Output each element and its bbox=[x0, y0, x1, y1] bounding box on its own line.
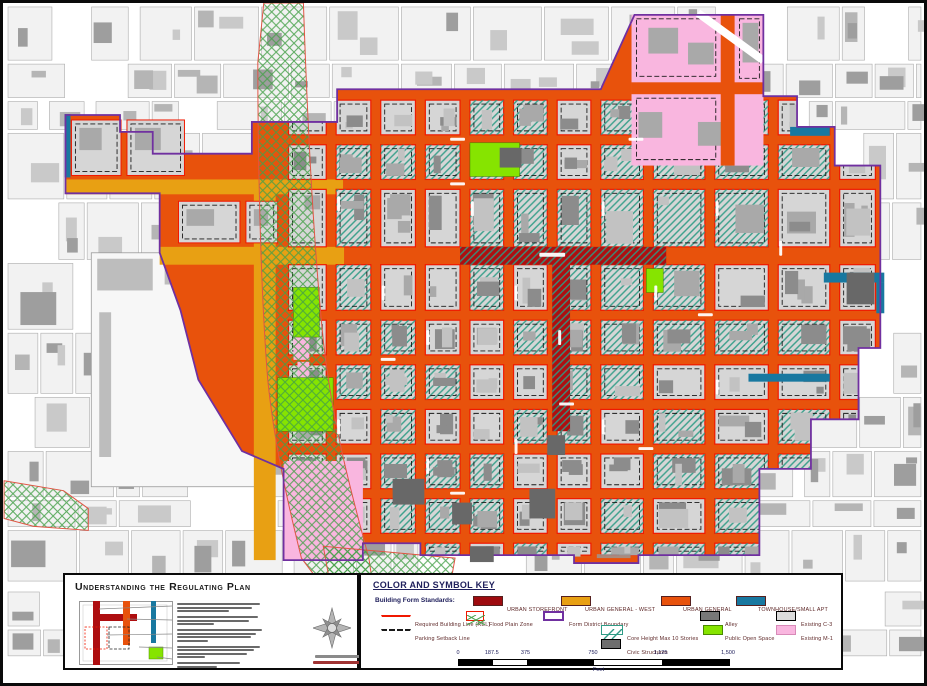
building-footprint bbox=[232, 541, 245, 567]
building-footprint bbox=[20, 292, 56, 325]
building-footprint bbox=[841, 106, 847, 124]
core-height-swatch bbox=[601, 625, 623, 635]
building-footprint bbox=[482, 110, 492, 130]
building-footprint bbox=[609, 465, 627, 472]
building-footprint bbox=[864, 416, 885, 425]
building-footprint bbox=[384, 464, 407, 478]
street-label-mark bbox=[337, 419, 340, 434]
form-district-boundary-swatch bbox=[543, 611, 564, 621]
map-fine-label bbox=[597, 554, 631, 558]
building-footprint bbox=[848, 23, 857, 38]
building-footprint bbox=[105, 542, 123, 556]
parcel bbox=[909, 7, 921, 60]
key-item-label: Public Open Space bbox=[725, 627, 775, 645]
building-footprint bbox=[517, 546, 536, 554]
building-footprint bbox=[11, 541, 45, 568]
building-footprint bbox=[404, 275, 413, 295]
street-label-mark bbox=[779, 241, 782, 256]
building-footprint bbox=[678, 431, 693, 437]
key-swatch bbox=[776, 611, 796, 621]
building-footprint bbox=[649, 554, 668, 569]
building-footprint bbox=[18, 28, 28, 47]
building-footprint bbox=[99, 312, 111, 457]
annotation-text-line bbox=[177, 629, 262, 631]
building-footprint bbox=[519, 233, 540, 242]
building-footprint bbox=[30, 462, 39, 482]
parcel bbox=[894, 333, 921, 393]
building-footprint bbox=[21, 108, 32, 125]
city-block bbox=[778, 365, 830, 400]
building-footprint bbox=[561, 122, 571, 129]
building-footprint bbox=[519, 109, 531, 126]
street-label-mark bbox=[602, 201, 605, 216]
building-footprint bbox=[434, 156, 441, 174]
street-label-mark bbox=[382, 286, 385, 301]
building-footprint bbox=[387, 198, 402, 219]
building-footprint bbox=[625, 420, 639, 434]
parcel bbox=[401, 7, 470, 60]
building-footprint bbox=[799, 80, 820, 95]
building-footprint bbox=[528, 289, 542, 307]
building-footprint bbox=[719, 416, 749, 427]
flood-plain-swatch bbox=[466, 611, 484, 621]
building-footprint bbox=[816, 387, 823, 394]
building-footprint bbox=[219, 17, 243, 29]
legend-mini-diagram bbox=[79, 601, 173, 665]
city-block bbox=[557, 100, 591, 135]
building-footprint bbox=[897, 542, 907, 553]
building-footprint bbox=[347, 279, 365, 297]
building-footprint bbox=[803, 560, 812, 569]
building-footprint bbox=[446, 13, 458, 31]
annotation-text-line bbox=[177, 607, 252, 609]
scale-tick-label: 187.5 bbox=[485, 650, 499, 656]
building-footprint bbox=[675, 464, 682, 486]
building-footprint bbox=[385, 377, 407, 385]
building-footprint bbox=[344, 333, 359, 352]
building-footprint bbox=[392, 326, 407, 347]
building-footprint bbox=[818, 17, 825, 40]
building-footprint bbox=[66, 218, 77, 242]
parcel bbox=[140, 7, 191, 60]
building-footprint bbox=[811, 459, 818, 482]
building-footprint bbox=[429, 196, 442, 230]
scale-bar-segment bbox=[493, 660, 527, 665]
key-swatch bbox=[700, 611, 720, 621]
scale-bar-segment bbox=[459, 660, 493, 665]
civic-structure bbox=[847, 273, 875, 305]
building-footprint bbox=[909, 163, 924, 172]
building-footprint bbox=[591, 81, 600, 88]
building-footprint bbox=[912, 104, 924, 121]
building-footprint bbox=[341, 67, 351, 77]
townhouse-small-apt-strip bbox=[748, 374, 829, 382]
building-footprint bbox=[474, 429, 490, 439]
building-footprint bbox=[476, 379, 496, 392]
building-footprint bbox=[123, 111, 136, 120]
building-footprint bbox=[572, 41, 599, 54]
building-footprint bbox=[394, 115, 412, 126]
annotation-text-line bbox=[177, 662, 240, 664]
building-footprint bbox=[71, 481, 90, 494]
building-footprint bbox=[880, 76, 904, 90]
building-footprint bbox=[444, 109, 455, 127]
street-label-mark bbox=[515, 439, 518, 454]
building-footprint bbox=[918, 20, 924, 32]
building-footprint bbox=[58, 345, 66, 365]
building-footprint bbox=[32, 71, 46, 78]
parcel bbox=[8, 592, 39, 626]
street-label-mark bbox=[450, 182, 465, 185]
parcel bbox=[41, 333, 73, 393]
scale-tick-label: 1,500 bbox=[721, 650, 735, 656]
annotation-paragraph bbox=[177, 629, 269, 642]
building-footprint bbox=[134, 70, 153, 89]
existing-m1-area bbox=[744, 97, 764, 158]
city-block bbox=[715, 365, 769, 400]
building-footprint bbox=[346, 372, 363, 388]
annotation-text-line bbox=[177, 620, 249, 622]
building-footprint bbox=[659, 380, 673, 393]
building-footprint bbox=[897, 508, 915, 519]
key-swatch bbox=[601, 639, 621, 649]
building-footprint bbox=[467, 68, 485, 84]
building-footprint bbox=[741, 296, 765, 307]
annotation-text-line bbox=[177, 633, 256, 635]
building-footprint bbox=[198, 11, 214, 28]
civic-structure bbox=[529, 489, 555, 519]
building-footprint bbox=[398, 221, 411, 233]
building-footprint bbox=[415, 72, 432, 85]
building-footprint bbox=[94, 22, 112, 43]
building-footprint bbox=[785, 271, 798, 294]
building-footprint bbox=[835, 503, 863, 511]
building-footprint bbox=[615, 386, 640, 396]
street-label-mark bbox=[426, 330, 429, 345]
key-item-label: Existing M-1 bbox=[801, 627, 833, 645]
building-footprint bbox=[623, 505, 631, 517]
building-footprint bbox=[894, 464, 916, 486]
building-footprint bbox=[817, 105, 828, 117]
building-footprint bbox=[430, 286, 436, 297]
building-footprint bbox=[729, 508, 747, 523]
scale-bar-segment bbox=[662, 660, 730, 665]
building-footprint bbox=[622, 323, 636, 343]
building-footprint bbox=[341, 201, 364, 209]
annotation-text-line bbox=[177, 616, 258, 618]
building-footprint bbox=[48, 639, 60, 653]
legend-annotation-paragraphs bbox=[177, 603, 269, 672]
scale-bar bbox=[458, 659, 730, 666]
street-label-mark bbox=[602, 419, 605, 434]
building-footprint bbox=[606, 211, 633, 244]
street-label-mark bbox=[638, 447, 653, 450]
annotation-text-line bbox=[177, 623, 214, 625]
building-footprint bbox=[906, 457, 917, 463]
annotation-text-line bbox=[177, 666, 217, 668]
street-label-mark bbox=[539, 253, 565, 257]
building-footprint bbox=[854, 535, 863, 560]
building-footprint bbox=[790, 413, 812, 430]
building-footprint bbox=[437, 425, 447, 433]
building-footprint bbox=[338, 11, 358, 40]
key-label-text: Flood Plain Zone bbox=[489, 622, 533, 628]
building-footprint bbox=[433, 378, 455, 386]
core-height-overlay bbox=[601, 265, 644, 311]
building-footprint bbox=[658, 197, 669, 206]
building-footprint bbox=[31, 163, 59, 182]
annotation-paragraph bbox=[177, 616, 269, 625]
scale-tick-label: 1,125 bbox=[654, 650, 668, 656]
building-footprint bbox=[47, 403, 67, 431]
building-footprint bbox=[611, 547, 624, 554]
building-footprint bbox=[729, 331, 752, 340]
civic-structure bbox=[547, 435, 565, 455]
core-height-overlay bbox=[601, 499, 644, 534]
building-footprint bbox=[843, 326, 867, 344]
building-footprint bbox=[565, 502, 582, 520]
key-label-text: Existing M-1 bbox=[801, 636, 833, 642]
civic-structure bbox=[393, 479, 425, 505]
key-swatch bbox=[776, 625, 796, 635]
annotation-text-line bbox=[177, 610, 229, 612]
civic-structure bbox=[470, 546, 494, 562]
building-footprint bbox=[440, 507, 449, 519]
building-footprint bbox=[565, 158, 577, 169]
annotation-text-line bbox=[177, 649, 254, 651]
building-footprint bbox=[523, 376, 535, 389]
key-label-text: Public Open Space bbox=[725, 636, 775, 642]
building-footprint bbox=[484, 464, 492, 481]
building-footprint bbox=[659, 509, 689, 528]
building-footprint bbox=[360, 37, 378, 55]
parking-setback-line-sample bbox=[381, 629, 411, 632]
building-footprint bbox=[735, 205, 763, 233]
building-footprint bbox=[535, 556, 548, 571]
core-height-overlay bbox=[425, 145, 460, 180]
building-footprint bbox=[667, 329, 690, 343]
building-footprint bbox=[729, 377, 739, 391]
building-footprint bbox=[13, 633, 34, 649]
building-footprint bbox=[902, 601, 924, 610]
annotation-text-line bbox=[177, 603, 260, 605]
building-footprint bbox=[621, 278, 632, 285]
street-label-mark bbox=[654, 286, 657, 301]
street-label-mark bbox=[558, 330, 561, 345]
building-footprint bbox=[659, 413, 665, 431]
building-footprint bbox=[901, 365, 917, 377]
building-footprint bbox=[523, 331, 535, 340]
parcel bbox=[916, 64, 921, 97]
building-footprint bbox=[474, 198, 494, 231]
key-item-label: Flood Plain Zone bbox=[489, 613, 533, 631]
key-swatch bbox=[703, 625, 723, 635]
building-footprint bbox=[12, 612, 33, 621]
building-footprint bbox=[15, 355, 30, 370]
building-footprint bbox=[154, 104, 172, 112]
scale-bar-segment bbox=[594, 660, 662, 665]
annotation-paragraph bbox=[177, 603, 269, 612]
building-footprint bbox=[792, 148, 819, 167]
key-label-text: Parking Setback Line bbox=[415, 636, 470, 642]
scale-tick-label: 375 bbox=[521, 650, 530, 656]
civic-structure bbox=[500, 148, 522, 168]
building-footprint bbox=[478, 328, 498, 344]
scale-bar-segment bbox=[527, 660, 595, 665]
building-footprint bbox=[916, 208, 924, 225]
building-footprint bbox=[539, 77, 557, 87]
building-footprint bbox=[610, 109, 619, 117]
building-footprint bbox=[562, 460, 581, 472]
parcel bbox=[888, 531, 921, 581]
street-label-mark bbox=[515, 286, 518, 301]
street-label-mark bbox=[629, 138, 644, 141]
parcel bbox=[8, 7, 52, 60]
building-footprint bbox=[789, 222, 810, 232]
street-label-mark bbox=[716, 201, 719, 216]
building-footprint bbox=[477, 511, 497, 527]
building-footprint bbox=[477, 282, 499, 296]
core-height-overlay bbox=[336, 189, 371, 246]
building-footprint bbox=[197, 76, 218, 94]
key-swatch bbox=[473, 596, 503, 606]
rbl-line-sample bbox=[381, 615, 411, 618]
building-footprint bbox=[87, 507, 107, 525]
building-footprint bbox=[398, 149, 405, 161]
street-label-mark bbox=[426, 459, 429, 474]
parcel bbox=[787, 7, 839, 60]
civic-structure bbox=[452, 503, 472, 525]
building-footprint bbox=[194, 546, 211, 573]
building-footprint bbox=[518, 464, 540, 473]
compass-rose-icon bbox=[313, 605, 351, 655]
building-footprint bbox=[520, 417, 537, 437]
building-footprint bbox=[138, 505, 171, 522]
building-footprint bbox=[347, 115, 363, 127]
building-footprint bbox=[847, 454, 864, 475]
building-footprint bbox=[442, 328, 452, 348]
annotation-paragraph bbox=[177, 646, 269, 659]
annotation-text-line bbox=[177, 646, 260, 648]
building-footprint bbox=[801, 325, 826, 345]
building-footprint bbox=[733, 464, 745, 483]
building-footprint bbox=[562, 196, 579, 225]
building-footprint bbox=[606, 157, 618, 170]
annotation-text-line bbox=[177, 640, 208, 642]
fine-print-url bbox=[313, 661, 361, 664]
townhouse-small-apt-strip bbox=[790, 127, 830, 136]
building-footprint bbox=[390, 507, 400, 529]
regulating-plan-page: Understanding the Regulating Plan bbox=[0, 0, 927, 686]
parcel bbox=[846, 531, 885, 581]
legend-understanding-panel: Understanding the Regulating Plan bbox=[63, 573, 359, 670]
street-label-mark bbox=[337, 196, 340, 211]
street-label-mark bbox=[716, 380, 719, 395]
building-footprint bbox=[152, 225, 159, 240]
building-footprint bbox=[899, 637, 924, 651]
building-footprint bbox=[352, 417, 365, 429]
building-footprint bbox=[490, 30, 507, 50]
street-label-mark bbox=[450, 138, 465, 141]
annotation-text-line bbox=[177, 653, 247, 655]
building-footprint bbox=[340, 157, 362, 173]
parcel bbox=[8, 64, 65, 97]
building-footprint bbox=[846, 72, 867, 84]
building-footprint bbox=[386, 163, 404, 175]
street-label-mark bbox=[471, 201, 474, 216]
scale-tick-label: 0 bbox=[456, 650, 459, 656]
key-title: COLOR AND SYMBOL KEY bbox=[373, 580, 841, 590]
scale-bar-unit: Feet bbox=[593, 667, 604, 673]
building-footprint bbox=[521, 214, 528, 234]
building-footprint bbox=[913, 403, 920, 427]
building-footprint bbox=[433, 467, 454, 476]
key-item-label: Parking Setback Line bbox=[415, 627, 470, 645]
building-footprint bbox=[846, 209, 870, 236]
building-footprint bbox=[386, 415, 393, 423]
building-footprint bbox=[561, 19, 594, 35]
building-footprint bbox=[67, 238, 78, 252]
parcel bbox=[473, 7, 541, 60]
legend-title: Understanding the Regulating Plan bbox=[75, 581, 357, 593]
building-footprint bbox=[97, 259, 153, 291]
building-footprint bbox=[745, 546, 760, 554]
building-footprint bbox=[758, 503, 786, 515]
color-symbol-key-panel: COLOR AND SYMBOL KEY Building Form Stand… bbox=[359, 573, 843, 670]
building-footprint bbox=[173, 30, 180, 40]
building-footprint bbox=[745, 422, 761, 437]
street-label-mark bbox=[450, 492, 465, 495]
street-label-mark bbox=[559, 402, 574, 405]
building-footprint bbox=[797, 279, 805, 299]
scale-tick-label: 750 bbox=[588, 650, 597, 656]
building-footprint bbox=[674, 271, 699, 297]
street-label-mark bbox=[698, 313, 713, 316]
annotation-text-line bbox=[177, 656, 205, 658]
annotation-paragraph bbox=[177, 662, 269, 668]
building-footprint bbox=[618, 106, 630, 119]
street-label-mark bbox=[381, 358, 396, 361]
annotation-text-line bbox=[177, 636, 251, 638]
building-form-standards-label: Building Form Standards: bbox=[375, 597, 455, 604]
